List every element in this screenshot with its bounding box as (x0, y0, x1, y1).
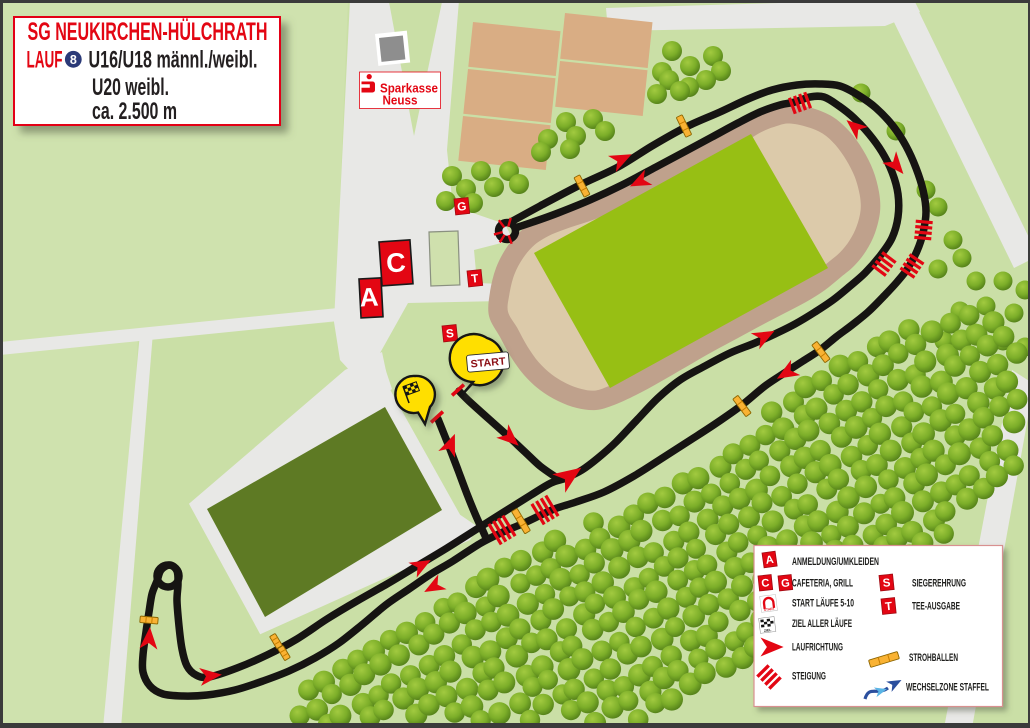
svg-text:TEE-AUSGABE: TEE-AUSGABE (912, 601, 960, 613)
svg-text:A: A (359, 282, 380, 313)
svg-text:G: G (457, 199, 468, 214)
svg-text:START LÄUFE 5-10: START LÄUFE 5-10 (792, 597, 854, 610)
svg-text:WECHSELZONE STAFFEL: WECHSELZONE STAFFEL (906, 682, 989, 694)
svg-text:C: C (761, 577, 770, 590)
svg-text:U20 weibl.: U20 weibl. (92, 74, 169, 101)
svg-text:G: G (781, 577, 791, 590)
svg-text:C: C (385, 247, 407, 278)
svg-text:ca. 2.500 m: ca. 2.500 m (92, 98, 177, 125)
svg-text:A: A (765, 554, 775, 567)
svg-text:U16/U18 männl./weibl.: U16/U18 männl./weibl. (89, 47, 258, 74)
svg-text:8: 8 (70, 53, 77, 67)
svg-text:ANMELDUNG/UMKLEIDEN: ANMELDUNG/UMKLEIDEN (792, 556, 879, 568)
svg-text:ZIEL ALLER LÄUFE: ZIEL ALLER LÄUFE (792, 617, 852, 630)
svg-text:LAUF: LAUF (27, 47, 63, 74)
svg-text:S: S (445, 326, 454, 341)
svg-text:S: S (882, 577, 891, 590)
svg-text:LAUFRICHTUNG: LAUFRICHTUNG (792, 642, 843, 654)
svg-text:STROHBALLEN: STROHBALLEN (909, 652, 958, 664)
svg-text:STEIGUNG: STEIGUNG (792, 671, 826, 683)
svg-text:SG NEUKIRCHEN-HÜLCHRATH: SG NEUKIRCHEN-HÜLCHRATH (28, 17, 268, 46)
svg-text:SIEGEREHRUNG: SIEGEREHRUNG (912, 578, 966, 590)
svg-text:T: T (885, 601, 893, 614)
svg-text:Neuss: Neuss (383, 94, 418, 108)
svg-text:CAFETERIA, GRILL: CAFETERIA, GRILL (792, 578, 853, 590)
